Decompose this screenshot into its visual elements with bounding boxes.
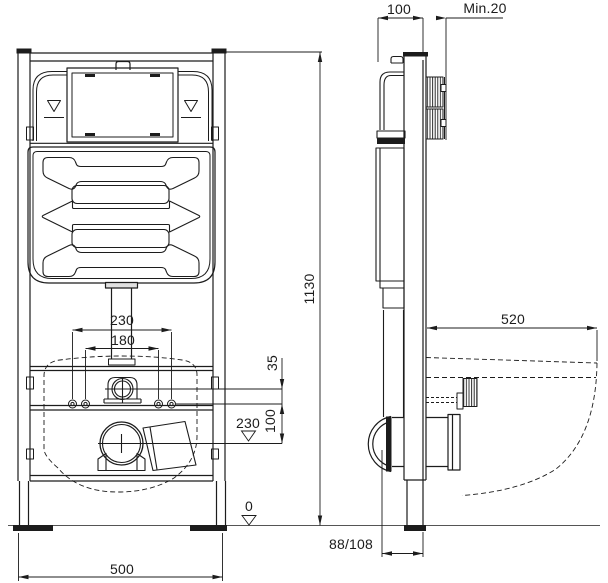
dim-label-bowl-depth: 520: [501, 312, 525, 326]
dim-label-frame-depth: 100: [387, 2, 411, 16]
side-rail: [403, 52, 428, 531]
dim-label-outlet-wall-offset: 88/108: [329, 537, 373, 551]
side-view: [368, 52, 597, 531]
dim-label-outlet-height: 230: [236, 416, 260, 430]
cistern-tank: [28, 143, 215, 283]
frame-legs: [13, 481, 227, 531]
frame-posts: [17, 49, 227, 482]
dim-label-frame-width: 500: [110, 562, 134, 576]
dim-label-floor-level: 0: [245, 499, 253, 513]
cistern-emboss: [42, 158, 200, 277]
dim-floor-level: [8, 516, 600, 526]
dim-label-bolt-inner: 180: [111, 333, 135, 347]
dim-label-min-clearance: Min.20: [463, 1, 506, 15]
post-clips: [27, 127, 219, 459]
dim-label-bolt-outer: 230: [110, 313, 134, 327]
dim-label-supply-outlet-gap: 100: [263, 409, 277, 433]
panel-corner-marks: [85, 74, 160, 136]
technical-drawing-toilet-frame: 100 Min.20 1130 230 180 35 230 100 520 0…: [0, 0, 608, 583]
double-arrow-emboss: [42, 201, 200, 232]
waste-outlet: [98, 422, 196, 471]
cistern-shoulders: [33, 72, 212, 142]
dim-bowl-depth: [427, 326, 597, 361]
access-panel: [67, 68, 178, 142]
front-view: [13, 49, 227, 532]
level-mark-zero-icon: [242, 516, 256, 526]
dim-label-frame-height: 1130: [302, 274, 316, 305]
side-cistern: [376, 57, 405, 418]
water-level-icon: [48, 101, 61, 112]
level-mark-230-icon: [242, 431, 256, 441]
water-level-icon: [185, 101, 198, 112]
side-bowl-dashed: [426, 358, 597, 496]
dim-label-supply-offset: 35: [265, 355, 279, 371]
flush-unit-hatched: [426, 77, 446, 139]
water-supply-connection: [104, 378, 141, 404]
wall-fixing-rods: [426, 379, 477, 410]
lid-knob: [116, 62, 130, 71]
outlet-funnel: [143, 422, 196, 471]
